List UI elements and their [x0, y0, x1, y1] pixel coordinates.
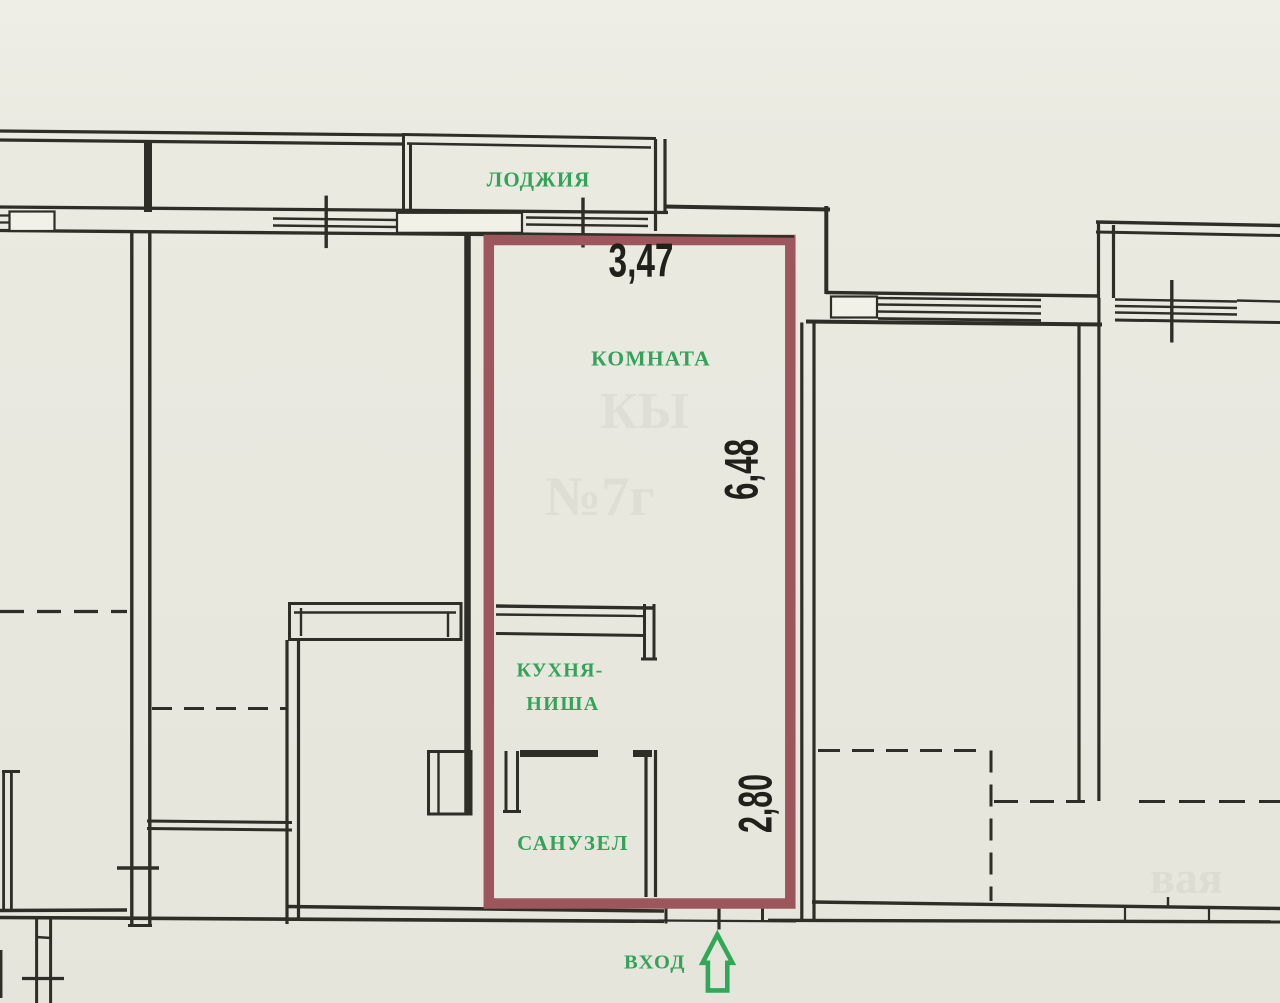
svg-text:ЛОДЖИЯ: ЛОДЖИЯ — [487, 168, 591, 192]
svg-text:КУХНЯ-: КУХНЯ- — [516, 660, 603, 682]
svg-text:2,80: 2,80 — [729, 774, 782, 833]
svg-text:ВХОД: ВХОД — [624, 952, 686, 974]
svg-text:КОМНАТА: КОМНАТА — [591, 347, 711, 371]
svg-text:НИША: НИША — [526, 693, 600, 715]
svg-text:№7г: №7г — [545, 466, 655, 528]
svg-text:6,48: 6,48 — [715, 439, 768, 500]
svg-text:КЫ: КЫ — [600, 383, 689, 440]
svg-text:вая: вая — [1150, 852, 1223, 903]
svg-text:3,47: 3,47 — [609, 234, 674, 287]
svg-text:САНУЗЕЛ: САНУЗЕЛ — [517, 831, 629, 855]
